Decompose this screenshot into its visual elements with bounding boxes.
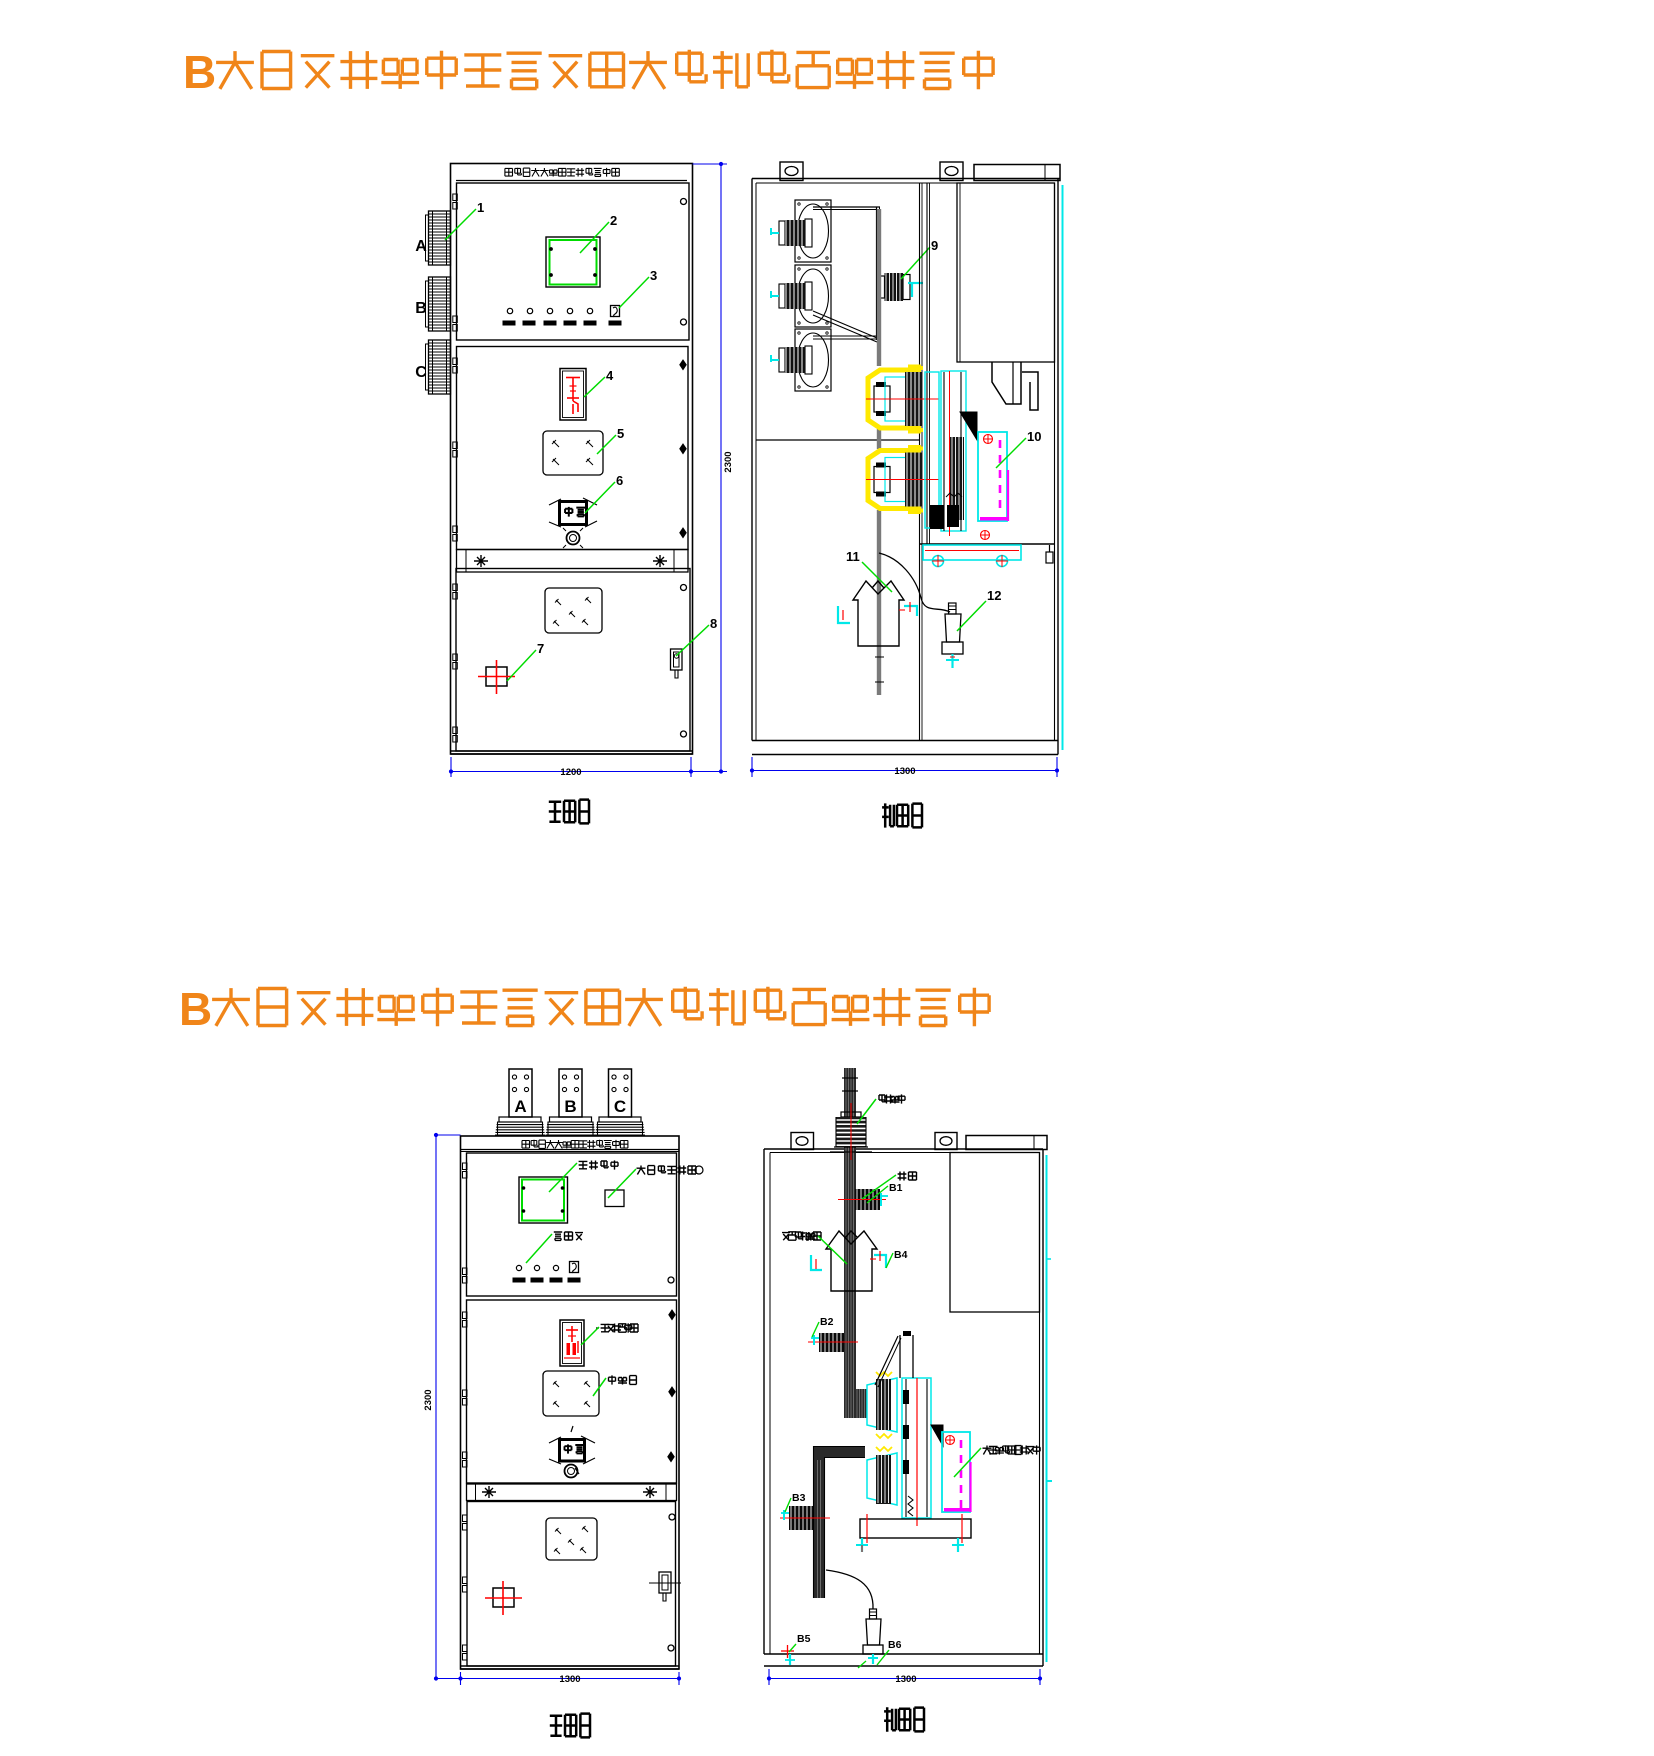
svg-text:7: 7 bbox=[537, 641, 544, 656]
svg-text:1: 1 bbox=[477, 200, 484, 215]
svg-text:B1: B1 bbox=[889, 1182, 903, 1194]
svg-text:2: 2 bbox=[610, 213, 617, 228]
svg-text:8: 8 bbox=[710, 616, 717, 631]
svg-text:6: 6 bbox=[616, 473, 623, 488]
svg-text:B: B bbox=[415, 300, 427, 317]
svg-text:B3: B3 bbox=[792, 1492, 806, 1504]
svg-text:B2: B2 bbox=[820, 1316, 834, 1328]
svg-text:B5: B5 bbox=[797, 1633, 811, 1645]
svg-text:4: 4 bbox=[606, 368, 614, 383]
svg-text:12: 12 bbox=[987, 588, 1001, 603]
svg-text:5: 5 bbox=[617, 426, 624, 441]
svg-text:B6: B6 bbox=[888, 1639, 902, 1651]
svg-text:1200: 1200 bbox=[560, 767, 581, 778]
svg-text:1300: 1300 bbox=[895, 1674, 916, 1685]
svg-text:10: 10 bbox=[1027, 429, 1041, 444]
svg-text:B: B bbox=[179, 983, 212, 1035]
svg-text:A: A bbox=[514, 1097, 526, 1116]
svg-text:1300: 1300 bbox=[894, 766, 915, 777]
svg-text:9: 9 bbox=[931, 238, 938, 253]
svg-text:3: 3 bbox=[650, 268, 657, 283]
svg-text:B: B bbox=[183, 46, 216, 98]
svg-text:1300: 1300 bbox=[559, 1674, 580, 1685]
svg-text:11: 11 bbox=[846, 549, 860, 564]
svg-text:B: B bbox=[564, 1097, 576, 1116]
svg-text:B4: B4 bbox=[894, 1249, 908, 1261]
svg-text:C: C bbox=[415, 364, 427, 381]
svg-text:C: C bbox=[614, 1097, 626, 1116]
svg-text:A: A bbox=[415, 238, 427, 255]
svg-text:2300: 2300 bbox=[423, 1389, 434, 1410]
svg-text:2300: 2300 bbox=[723, 451, 734, 472]
